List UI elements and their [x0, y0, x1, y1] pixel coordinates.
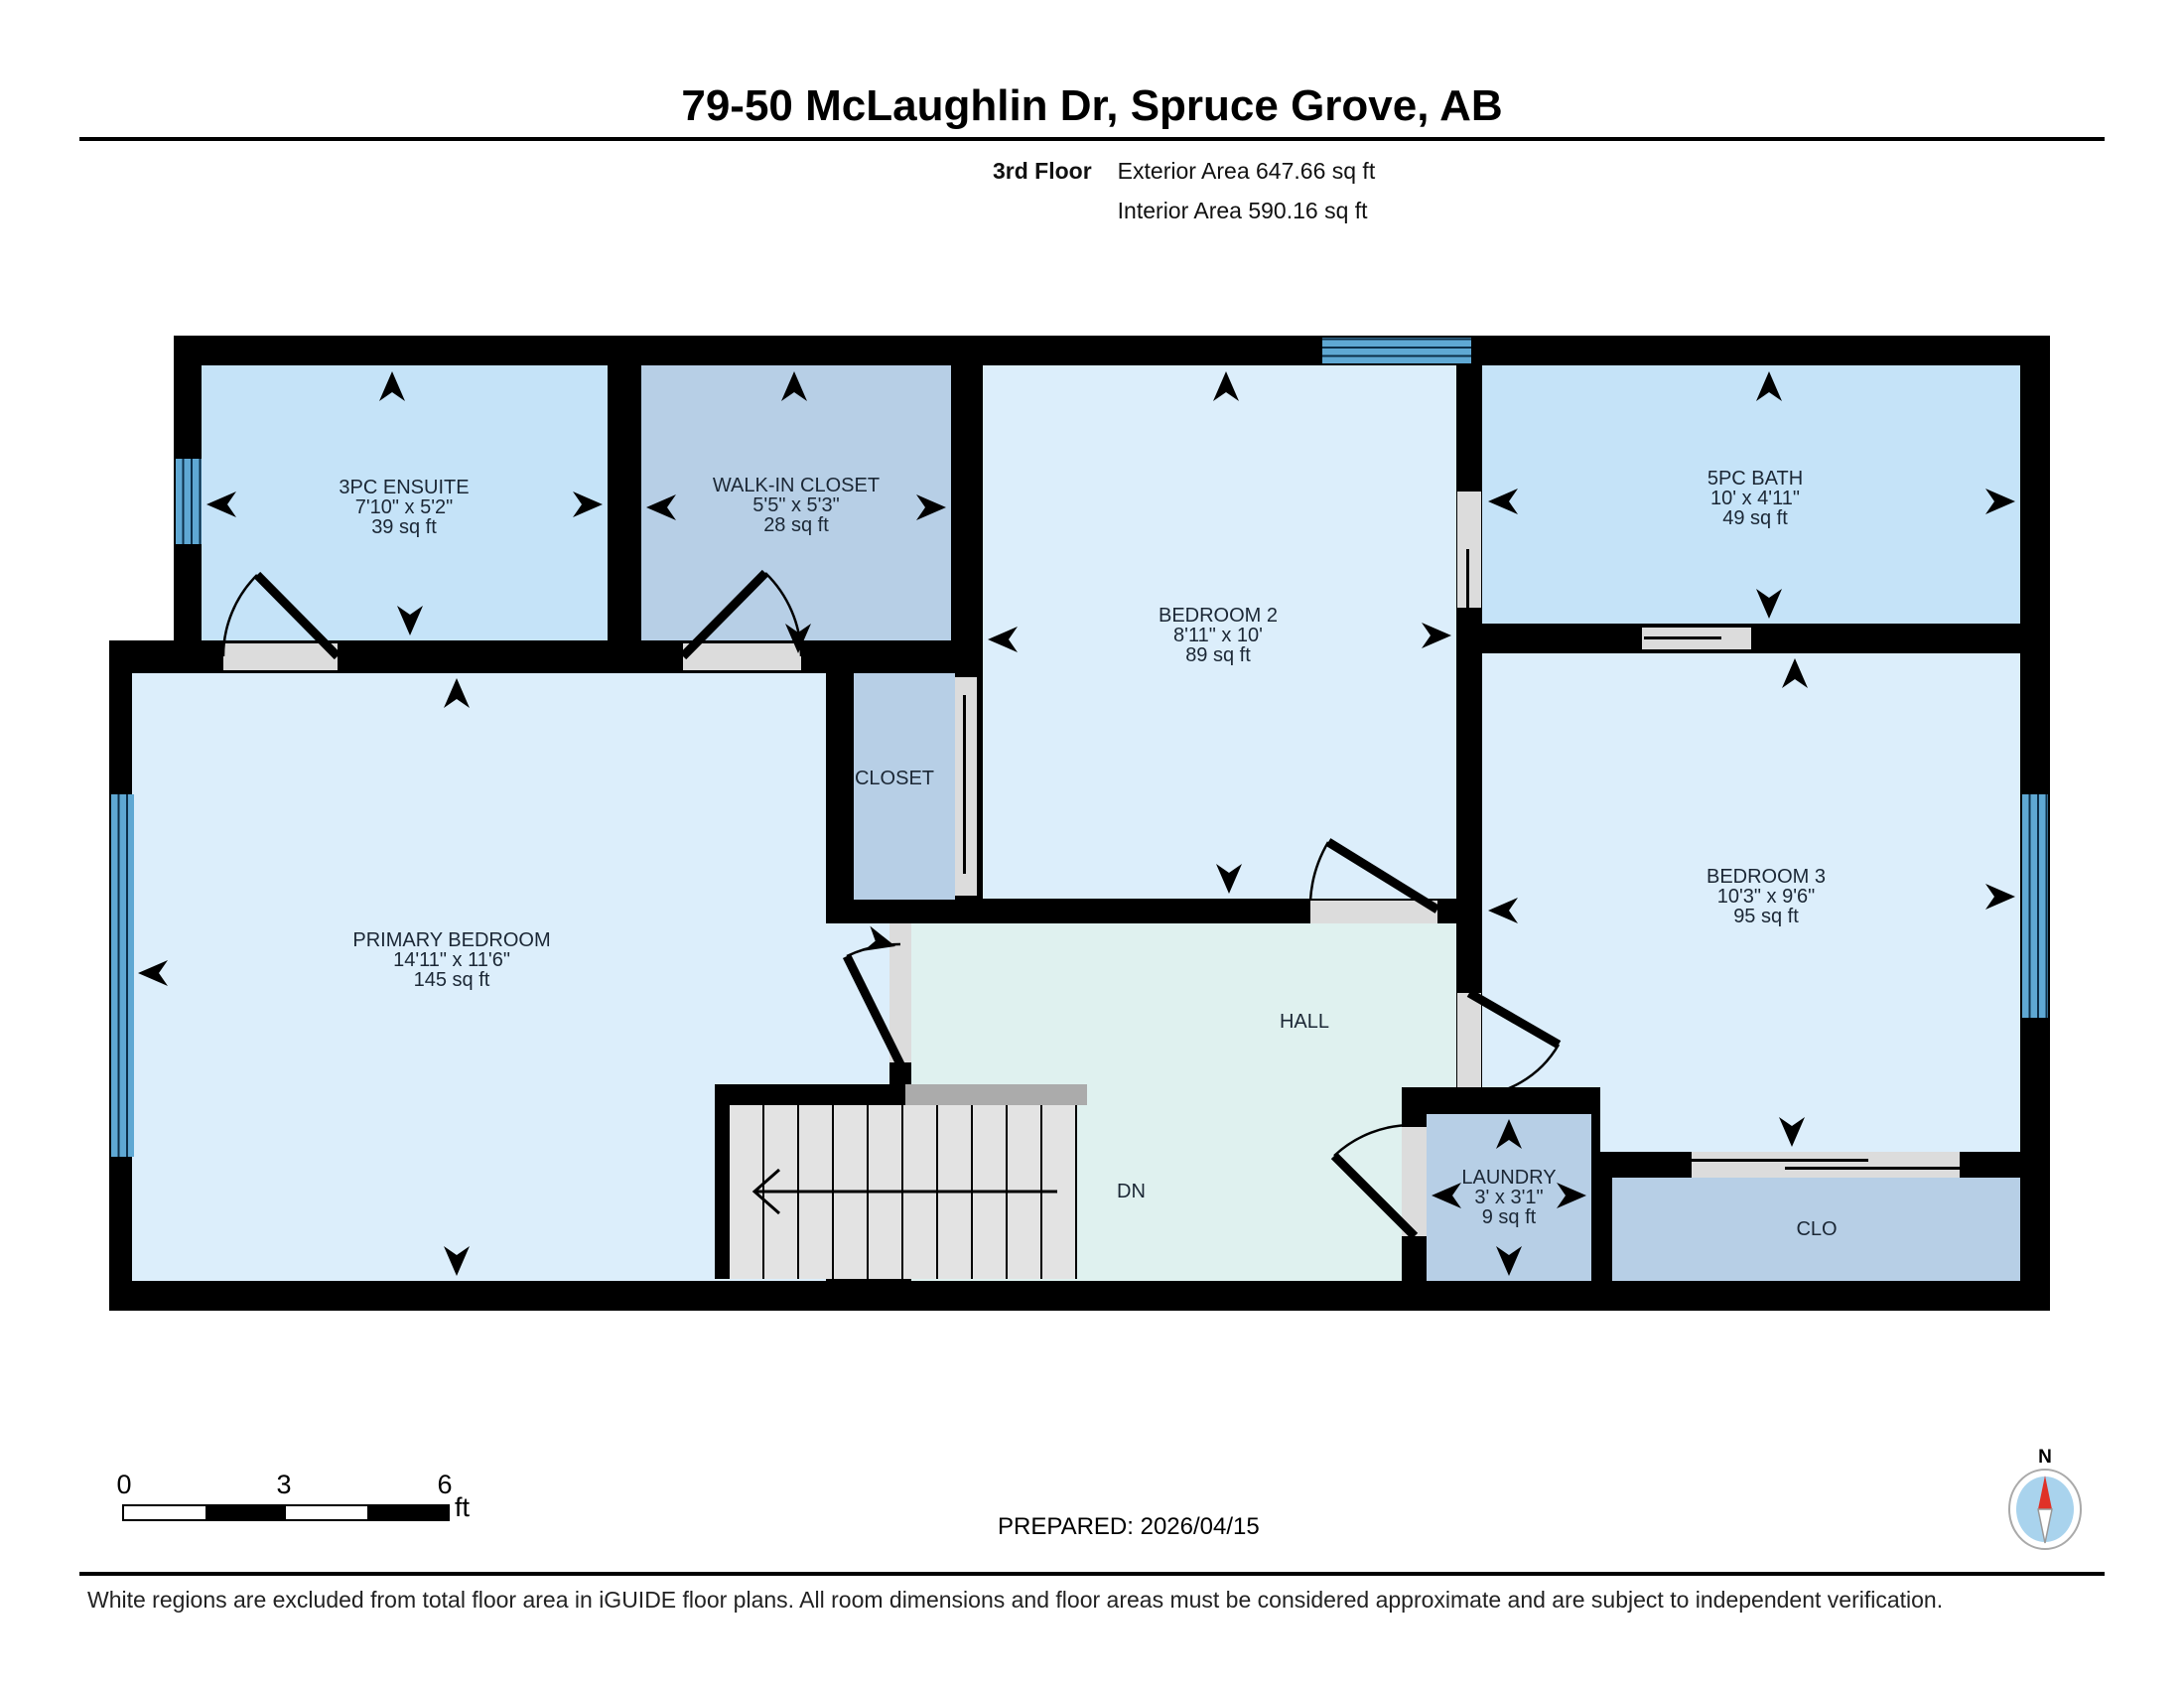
room-dims: 10'3" x 9'6"	[1706, 887, 1826, 907]
room-dims: 10' x 4'11"	[1707, 489, 1803, 508]
door-bypass-clo-panel1	[1692, 1159, 1868, 1162]
room-name: BEDROOM 2	[1159, 606, 1278, 626]
room-area: 39 sq ft	[339, 517, 469, 537]
room-name: CLOSET	[855, 769, 934, 788]
door-opening-laundry	[1402, 1127, 1427, 1236]
scale-segment	[205, 1506, 287, 1519]
room-name: CLO	[1796, 1219, 1837, 1239]
room-name: PRIMARY BEDROOM	[352, 930, 550, 950]
door-bypass-clo	[1692, 1152, 1960, 1178]
scale-segment	[367, 1506, 449, 1519]
scale-bar	[122, 1504, 450, 1521]
window-bedroom3-right	[2022, 794, 2048, 1018]
header-divider	[79, 137, 2105, 141]
room-name: WALK-IN CLOSET	[713, 476, 880, 495]
room-area: 49 sq ft	[1707, 508, 1803, 528]
interior-area: Interior Area 590.16 sq ft	[1118, 191, 1376, 230]
exterior-area: Exterior Area 647.66 sq ft	[1118, 151, 1376, 191]
door-opening-bedroom2	[1310, 901, 1437, 923]
room-name: 3PC ENSUITE	[339, 478, 469, 497]
room-label-closet: CLOSET	[855, 769, 934, 788]
room-name: BEDROOM 3	[1706, 867, 1826, 887]
stairs-railing	[905, 1084, 1087, 1105]
scale-unit: ft	[455, 1492, 470, 1523]
floor-summary: 3rd Floor Exterior Area 647.66 sq ft Int…	[993, 151, 1375, 230]
room-label-primary: PRIMARY BEDROOM 14'11" x 11'6" 145 sq ft	[352, 930, 550, 990]
room-label-walkin: WALK-IN CLOSET 5'5" x 5'3" 28 sq ft	[713, 476, 880, 535]
door-pocket-bath-bottom-panel	[1644, 636, 1721, 639]
room-label-clo: CLO	[1796, 1219, 1837, 1239]
door-slider-closet-panel	[963, 695, 966, 874]
stairs-treads	[730, 1105, 1077, 1279]
window-top-center	[1322, 338, 1471, 363]
room-label-laundry: LAUNDRY 3' x 3'1" 9 sq ft	[1461, 1168, 1556, 1227]
door-opening-primary	[889, 923, 911, 1062]
compass-icon	[2007, 1468, 2083, 1551]
window-ensuite-left	[176, 459, 202, 544]
door-pocket-bath-panel	[1466, 549, 1469, 609]
room-label-bedroom2: BEDROOM 2 8'11" x 10' 89 sq ft	[1159, 606, 1278, 665]
room-dims: 5'5" x 5'3"	[713, 495, 880, 515]
room-area: 9 sq ft	[1461, 1207, 1556, 1227]
room-name: 5PC BATH	[1707, 469, 1803, 489]
scale-segment	[286, 1506, 367, 1519]
stairs-dn-label: DN	[1117, 1182, 1146, 1201]
door-opening-walkin	[683, 643, 801, 670]
scale-tick-6: 6	[437, 1470, 452, 1500]
room-dims: 7'10" x 5'2"	[339, 497, 469, 517]
room-area: 145 sq ft	[352, 970, 550, 990]
room-dims: 14'11" x 11'6"	[352, 950, 550, 970]
dn-text: DN	[1117, 1182, 1146, 1201]
room-label-bedroom3: BEDROOM 3 10'3" x 9'6" 95 sq ft	[1706, 867, 1826, 926]
prepared-date: PREPARED: 2026/04/15	[998, 1513, 1260, 1541]
scale-segment	[124, 1506, 205, 1519]
disclaimer-text: White regions are excluded from total fl…	[87, 1587, 2073, 1614]
room-primary-bedroom-floor-ext	[826, 923, 889, 1084]
room-label-ensuite: 3PC ENSUITE 7'10" x 5'2" 39 sq ft	[339, 478, 469, 537]
stairs-left-wall	[715, 1105, 730, 1279]
door-pocket-bath	[1457, 492, 1481, 608]
room-name: HALL	[1280, 1012, 1329, 1032]
scale-tick-0: 0	[116, 1470, 131, 1500]
room-dims: 3' x 3'1"	[1461, 1188, 1556, 1207]
room-label-bath: 5PC BATH 10' x 4'11" 49 sq ft	[1707, 469, 1803, 528]
compass-north-label: N	[2038, 1447, 2052, 1469]
room-area: 89 sq ft	[1159, 645, 1278, 665]
area-values: Exterior Area 647.66 sq ft Interior Area…	[1118, 151, 1376, 230]
door-opening-bedroom3	[1457, 993, 1481, 1088]
scale-tick-3: 3	[276, 1470, 291, 1500]
room-area: 28 sq ft	[713, 515, 880, 535]
room-area: 95 sq ft	[1706, 907, 1826, 926]
window-primary-left	[111, 794, 134, 1157]
floor-label: 3rd Floor	[993, 151, 1092, 230]
room-dims: 8'11" x 10'	[1159, 626, 1278, 645]
door-slider-closet	[955, 677, 977, 896]
floorplan-page: 79-50 McLaughlin Dr, Spruce Grove, AB 3r…	[0, 0, 2184, 1688]
room-label-hall: HALL	[1280, 1012, 1329, 1032]
footer-divider	[79, 1572, 2105, 1576]
room-name: LAUNDRY	[1461, 1168, 1556, 1188]
stairs-top-wall	[715, 1084, 905, 1105]
door-bypass-clo-panel2	[1785, 1167, 1960, 1170]
page-title: 79-50 McLaughlin Dr, Spruce Grove, AB	[0, 81, 2184, 131]
door-opening-ensuite	[223, 643, 338, 670]
